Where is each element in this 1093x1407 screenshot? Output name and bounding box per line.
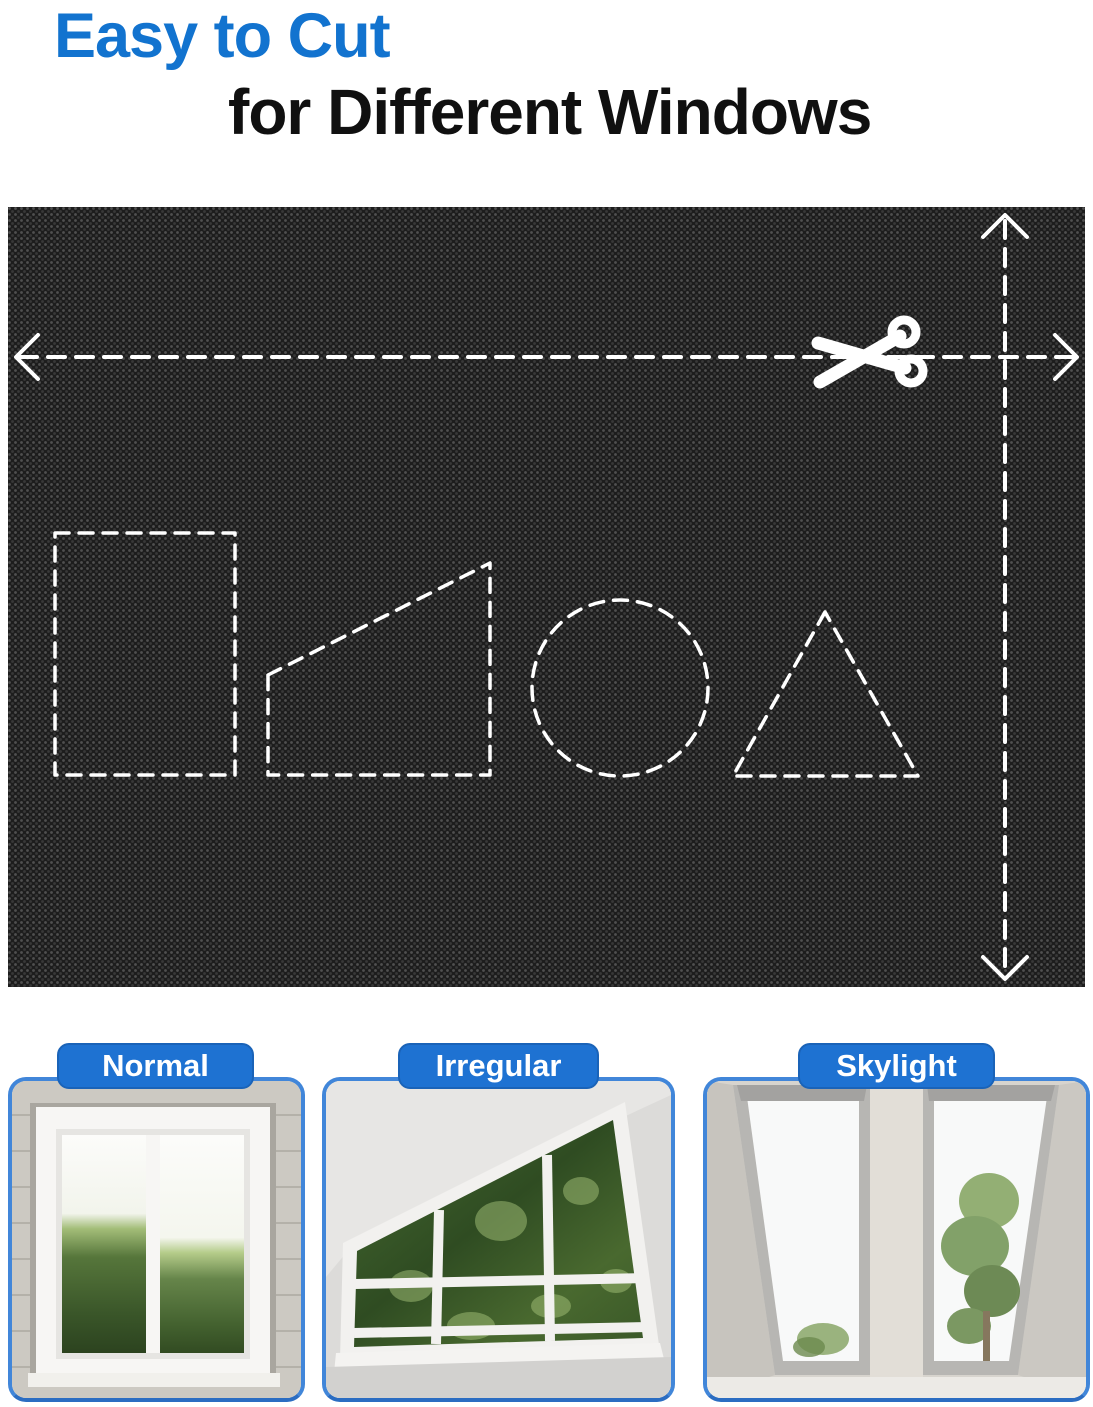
label-tab-skylight: Skylight bbox=[798, 1043, 995, 1089]
cut-arrow-vertical bbox=[983, 215, 1027, 979]
card-normal-window bbox=[8, 1077, 305, 1402]
scissors-icon bbox=[818, 320, 923, 383]
label-text-normal: Normal bbox=[102, 1048, 209, 1084]
cut-shape-rectangle bbox=[55, 533, 235, 775]
headline-line2: for Different Windows bbox=[228, 76, 871, 150]
headline-line1: Easy to Cut bbox=[54, 0, 390, 72]
skylight-window-photo bbox=[707, 1081, 1086, 1398]
card-irregular-window bbox=[322, 1077, 675, 1402]
normal-window-photo bbox=[12, 1081, 301, 1398]
label-text-skylight: Skylight bbox=[836, 1048, 957, 1084]
label-tab-normal: Normal bbox=[57, 1043, 254, 1089]
card-skylight-window bbox=[703, 1077, 1090, 1402]
cut-shape-triangle bbox=[733, 612, 918, 776]
label-tab-irregular: Irregular bbox=[398, 1043, 599, 1089]
cutting-guides-graphic bbox=[8, 207, 1085, 987]
product-marketing-image: Easy to Cut for Different Windows bbox=[0, 0, 1093, 1407]
label-text-irregular: Irregular bbox=[436, 1048, 562, 1084]
blackout-fabric-panel bbox=[8, 207, 1085, 987]
cut-shape-circle bbox=[532, 600, 708, 776]
irregular-window-photo bbox=[326, 1081, 671, 1398]
cut-shape-trapezoid bbox=[268, 563, 490, 775]
